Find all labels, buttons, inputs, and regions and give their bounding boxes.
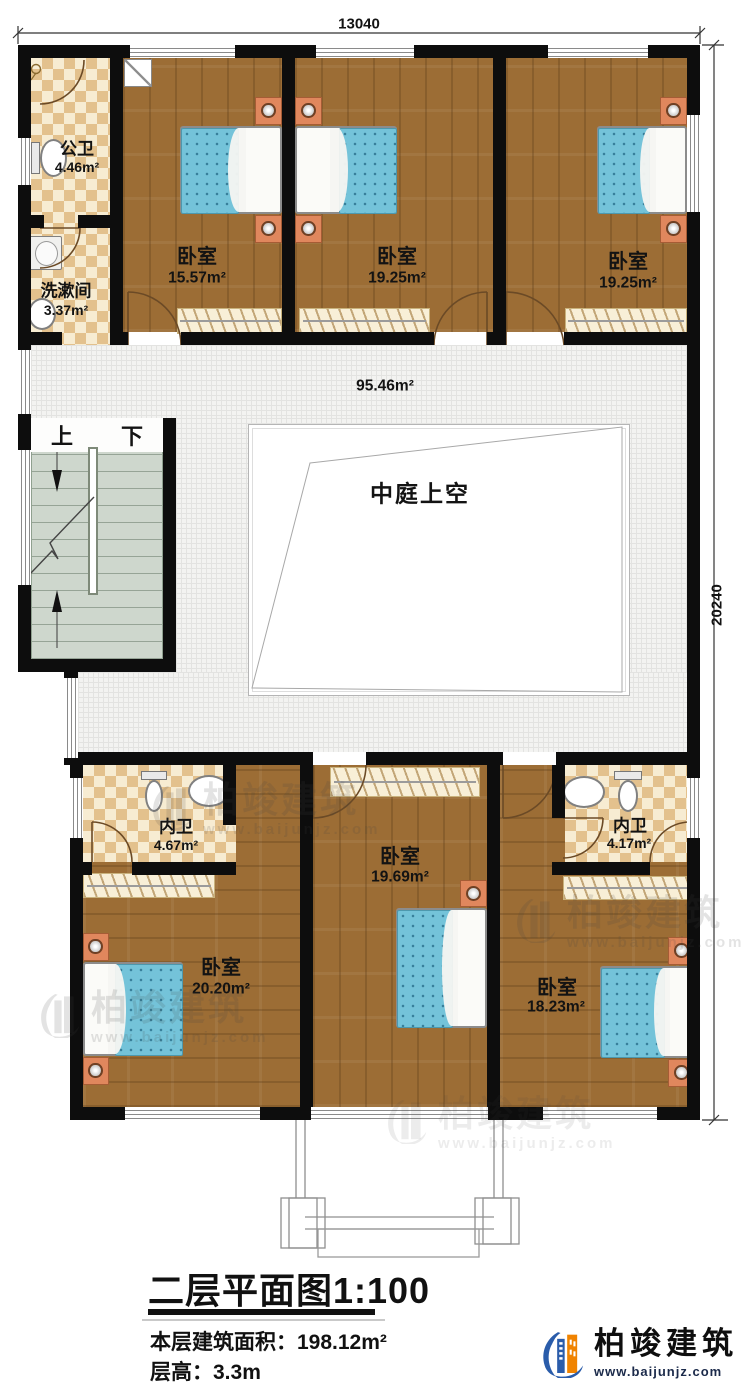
stair-down-label: 下	[121, 426, 143, 448]
room-label-bedroom-sw: 卧室	[201, 958, 241, 978]
room-label-bedroom-nw: 卧室	[177, 247, 217, 267]
wall	[487, 332, 506, 345]
window	[548, 45, 648, 58]
wall	[493, 58, 506, 345]
window	[18, 450, 31, 585]
wardrobe	[563, 876, 697, 900]
wall	[110, 58, 123, 345]
window	[543, 1107, 657, 1120]
brand-logo: 柏竣建筑 www.baijunjz.com	[538, 1328, 738, 1378]
room-area-bath-sw: 4.67m²	[154, 838, 198, 852]
wall	[82, 862, 92, 875]
title-underline-thin	[142, 1319, 385, 1321]
wall	[18, 215, 44, 228]
atrium-void-outline	[248, 424, 630, 696]
washing-machine-icon	[29, 236, 62, 270]
room-label-bath-se: 内卫	[613, 818, 647, 835]
bed-sheet	[654, 968, 670, 1056]
window	[687, 778, 700, 838]
wall	[163, 418, 176, 659]
wall	[556, 752, 700, 765]
dimension-top: 13040	[338, 17, 380, 32]
window	[130, 45, 235, 58]
room-label-public-bath: 公卫	[60, 141, 94, 158]
floor-height-text: 层高：3.3m	[150, 1356, 261, 1386]
window	[687, 115, 700, 212]
nightstand	[660, 215, 687, 243]
window	[64, 678, 78, 758]
wall	[223, 765, 236, 825]
toilet-icon	[141, 771, 167, 780]
wall	[18, 332, 62, 345]
wall	[64, 752, 313, 765]
watermark-url: www.baijunjz.com	[438, 1136, 615, 1151]
brand-name: 柏竣建筑	[594, 1328, 738, 1359]
toilet-icon	[145, 780, 163, 812]
window	[125, 1107, 260, 1120]
wardrobe	[299, 308, 430, 334]
room-area-public-bath: 4.46m²	[55, 160, 99, 174]
wall	[487, 765, 500, 1107]
wall	[181, 332, 282, 345]
room-area-bedroom-nw: 15.57m²	[168, 270, 226, 286]
wall	[132, 862, 236, 875]
window	[18, 350, 31, 414]
nightstand	[83, 1057, 109, 1085]
room-label-bedroom-s: 卧室	[380, 847, 420, 867]
stair-handrail	[88, 447, 98, 595]
room-area-bedroom-n: 19.25m²	[368, 270, 426, 286]
wall	[552, 765, 565, 818]
room-area-bedroom-sw: 20.20m²	[192, 981, 250, 997]
nightstand	[295, 215, 322, 243]
brand-url: www.baijunjz.com	[594, 1365, 738, 1378]
wall	[78, 215, 110, 228]
wall	[564, 332, 700, 345]
nightstand	[295, 97, 322, 125]
toilet-icon	[614, 771, 642, 780]
room-area-bedroom-ne: 19.25m²	[599, 275, 657, 291]
bed-sheet	[228, 128, 246, 212]
room-label-washroom: 洗漱间	[41, 283, 92, 300]
atrium-label: 中庭上空	[370, 483, 470, 506]
wall	[688, 862, 700, 875]
nightstand	[255, 215, 282, 243]
wall	[282, 58, 295, 345]
building-swoosh-logo-icon	[538, 1328, 588, 1378]
room-area-bedroom-se: 18.23m²	[527, 999, 585, 1015]
nightstand	[460, 880, 487, 907]
toilet-icon	[31, 142, 40, 174]
nightstand	[660, 97, 687, 125]
wall	[295, 332, 434, 345]
nightstand	[83, 933, 109, 961]
wall	[18, 659, 176, 672]
wardrobe	[83, 873, 215, 898]
dimension-right: 20240	[710, 584, 725, 626]
title-underline	[148, 1309, 375, 1315]
floor-plan-page: 13040 20240 公卫 4.46m² 洗漱间 3.37m² 卧室 15.5…	[0, 0, 750, 1391]
plan-title: 二层平面图1:100	[148, 1262, 430, 1314]
bed-sheet	[442, 910, 458, 1026]
room-area-washroom: 3.37m²	[44, 303, 88, 317]
wall	[552, 862, 650, 875]
wardrobe	[330, 767, 480, 797]
nightstand	[255, 97, 282, 125]
stair-up-label: 上	[51, 426, 73, 448]
room-label-bedroom-se: 卧室	[537, 978, 577, 998]
wardrobe	[177, 308, 282, 334]
bed-sheet	[640, 128, 656, 212]
floor-area-text: 本层建筑面积：198.12m²	[150, 1326, 387, 1356]
room-label-bedroom-n: 卧室	[377, 247, 417, 267]
toilet-icon	[618, 780, 638, 812]
room-label-bath-sw: 内卫	[159, 819, 193, 836]
wall	[110, 332, 128, 345]
wall	[366, 752, 503, 765]
basin-icon	[563, 776, 605, 808]
window	[316, 45, 414, 58]
window	[311, 1107, 488, 1120]
wall	[300, 765, 313, 1107]
room-label-bedroom-ne: 卧室	[608, 252, 648, 272]
hall-area: 95.46m²	[356, 378, 414, 394]
wardrobe	[565, 308, 687, 334]
duct-shaft	[124, 59, 152, 87]
window	[18, 138, 31, 185]
room-area-bath-se: 4.17m²	[607, 836, 651, 850]
window	[70, 778, 83, 838]
room-area-bedroom-s: 19.69m²	[371, 869, 429, 885]
